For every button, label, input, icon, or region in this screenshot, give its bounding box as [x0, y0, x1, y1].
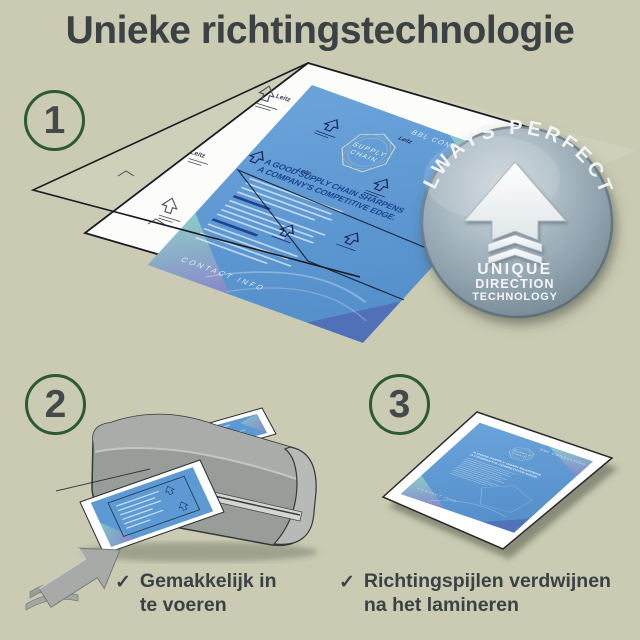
product-infographic: Unieke richtingstechnologie [0, 0, 640, 640]
checkmark-icon: ✓ [115, 571, 131, 618]
step-2-number: 2 [25, 374, 86, 435]
step-2-number-label: 2 [45, 383, 67, 427]
step-2-caption-line1: Gemakkelijk in [140, 570, 277, 592]
step-3-caption: ✓ Richtingspijlen verdwijnen na het lami… [339, 570, 611, 618]
step-2-caption: ✓ Gemakkelijk in te voeren [115, 570, 277, 618]
step3-laminated-document: BBL CONSULTING SUPPLY CHAIN A GOOD SUPPL… [383, 412, 618, 559]
badge-line-3: TECHNOLOGY [472, 291, 558, 303]
step-3-caption-line1: Richtingspijlen verdwijnen [364, 570, 611, 592]
step-3-caption-text: Richtingspijlen verdwijnen na het lamine… [364, 570, 611, 618]
badge-line-2: DIRECTION [475, 277, 555, 291]
step-2-caption-line2: te voeren [140, 594, 227, 616]
step-1-number-label: 1 [44, 99, 66, 143]
checkmark-icon: ✓ [339, 571, 355, 618]
step-3-caption-line2: na het lamineren [364, 594, 519, 616]
illustration-layer: Leitz Leitz [0, 0, 640, 640]
step-2-caption-text: Gemakkelijk in te voeren [140, 570, 277, 618]
step-3-number-label: 3 [389, 383, 411, 427]
badge-line-1: UNIQUE [477, 261, 552, 278]
step-1-number: 1 [24, 90, 85, 151]
step-3-number: 3 [369, 374, 430, 435]
feed-arrow-icon [26, 548, 120, 610]
